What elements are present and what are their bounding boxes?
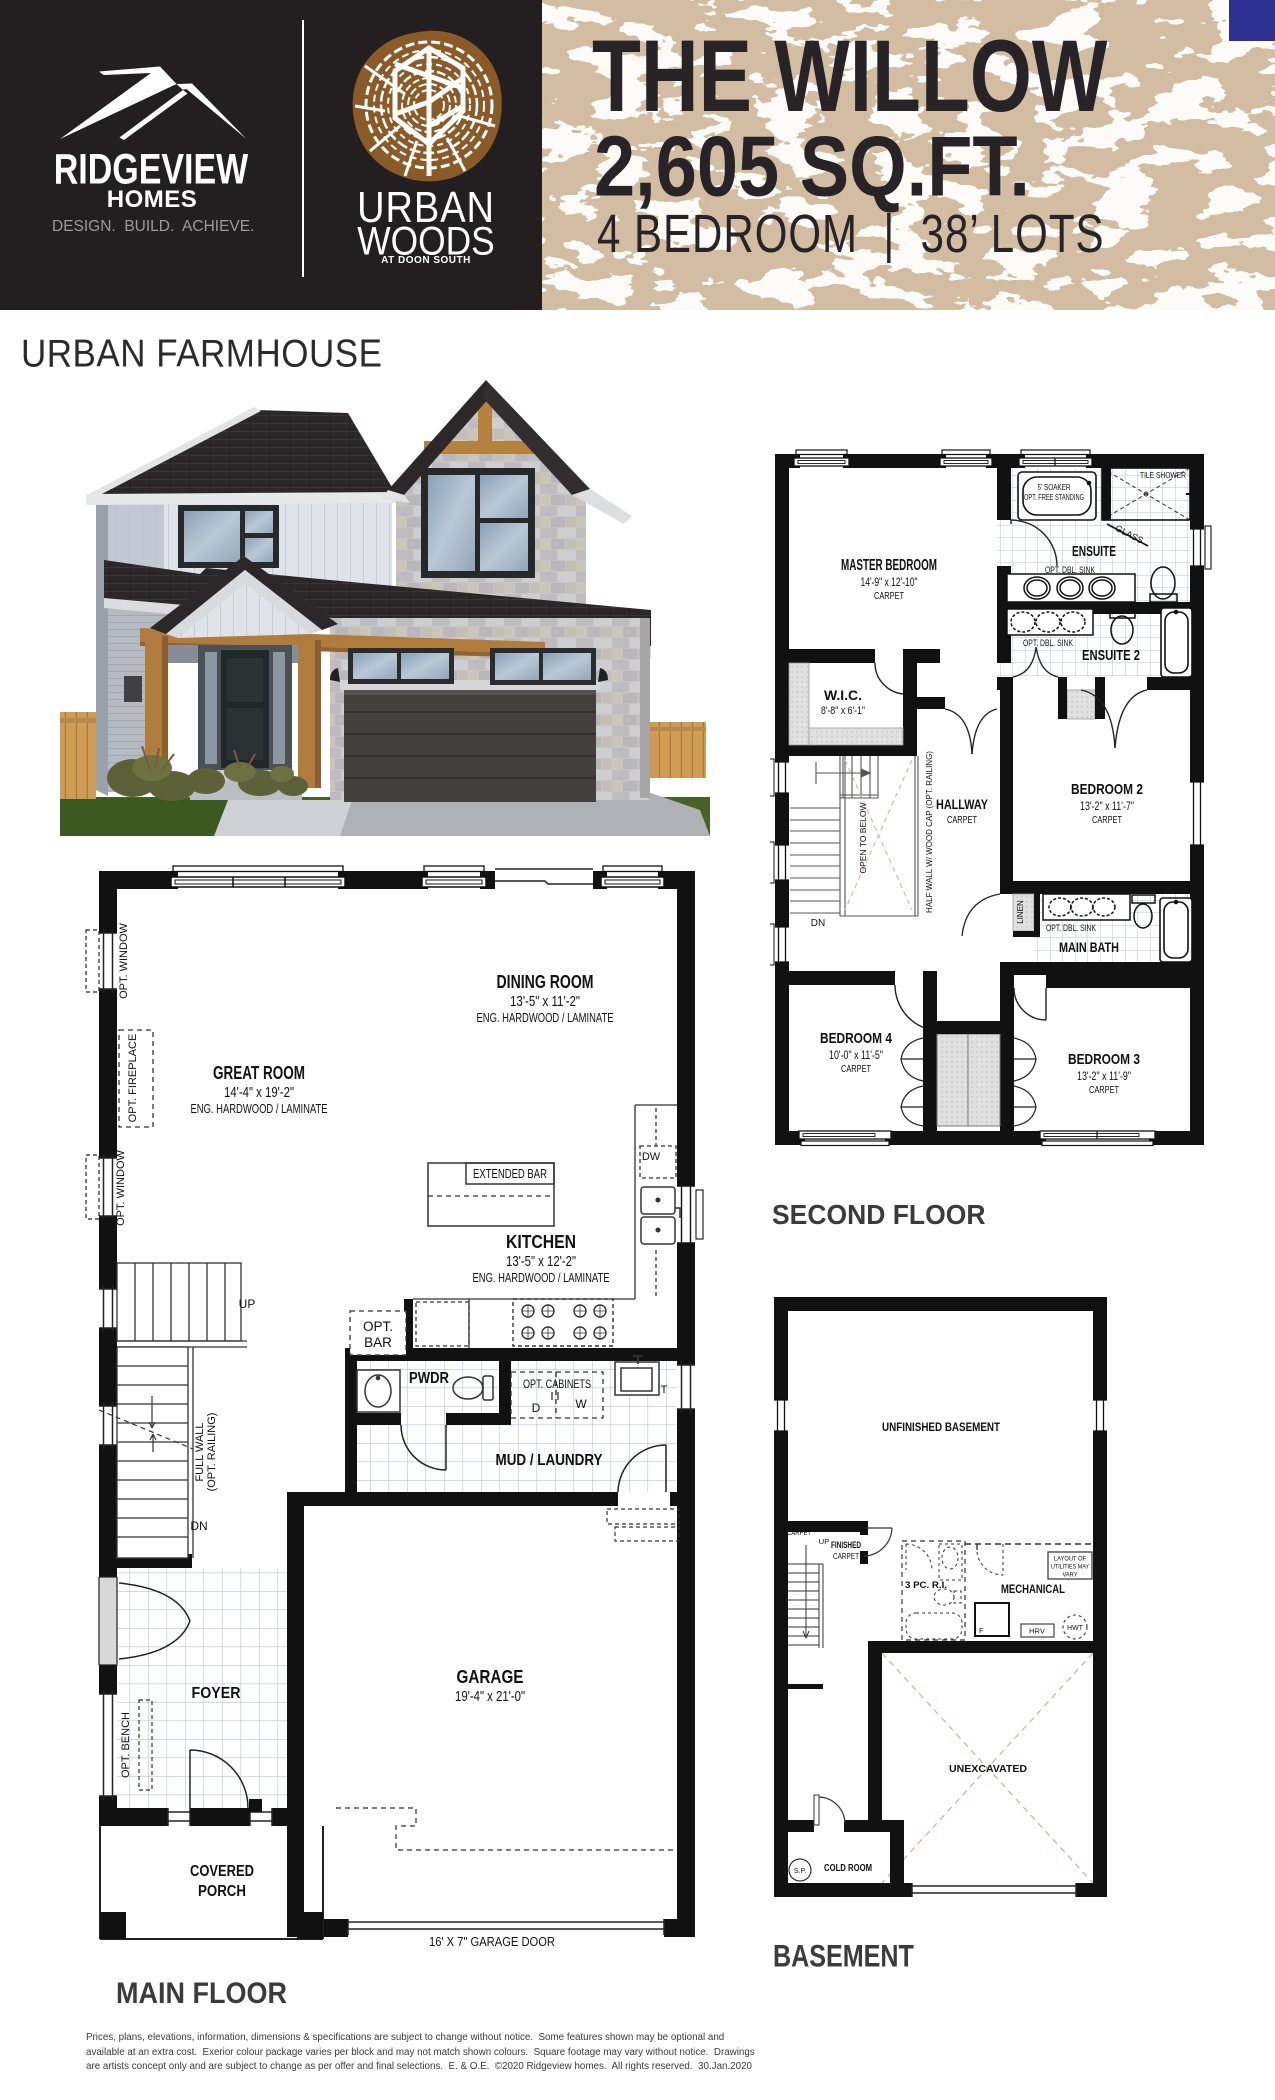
svg-text:FULL WALL: FULL WALL (194, 1422, 206, 1481)
svg-text:OPT. CABINETS: OPT. CABINETS (523, 1379, 591, 1391)
svg-text:VARY: VARY (1063, 1572, 1078, 1579)
svg-text:10'-0" x 11'-5": 10'-0" x 11'-5" (829, 1048, 883, 1062)
svg-text:COVERED: COVERED (190, 1863, 254, 1880)
svg-text:S.P.: S.P. (794, 1868, 806, 1875)
svg-text:ENG. HARDWOOD / LAMINATE: ENG. HARDWOOD / LAMINATE (473, 1270, 610, 1285)
svg-text:13'-2" x 11'-7": 13'-2" x 11'-7" (1080, 799, 1134, 813)
svg-text:3 PC. R.I.: 3 PC. R.I. (905, 1580, 947, 1591)
svg-text:KITCHEN: KITCHEN (506, 1232, 576, 1252)
svg-text:UTILITIES MAY: UTILITIES MAY (1051, 1564, 1089, 1571)
svg-text:OPT. DBL. SINK: OPT. DBL. SINK (1045, 565, 1095, 576)
svg-text:CARPET: CARPET (1092, 814, 1122, 826)
svg-text:OPT. DBL. SINK: OPT. DBL. SINK (1046, 923, 1096, 934)
svg-text:BEDROOM 4: BEDROOM 4 (820, 1030, 893, 1047)
svg-text:EXTENDED BAR: EXTENDED BAR (473, 1167, 547, 1181)
svg-text:(OPT. RAILING): (OPT. RAILING) (206, 1413, 218, 1492)
svg-text:CARPET: CARPET (947, 814, 977, 826)
svg-text:CARPET: CARPET (841, 1063, 871, 1075)
svg-text:HWT: HWT (1067, 1625, 1084, 1632)
svg-text:16' X 7" GARAGE DOOR: 16' X 7" GARAGE DOOR (429, 1934, 555, 1949)
svg-text:19'-4" x 21'-0": 19'-4" x 21'-0" (455, 1689, 525, 1705)
svg-text:ENG. HARDWOOD / LAMINATE: ENG. HARDWOOD / LAMINATE (191, 1101, 328, 1116)
svg-text:MAIN BATH: MAIN BATH (1059, 940, 1119, 955)
svg-text:DN: DN (190, 1519, 207, 1533)
svg-text:GREAT ROOM: GREAT ROOM (213, 1063, 305, 1083)
svg-text:CARPET: CARPET (874, 590, 904, 602)
svg-text:W: W (575, 1397, 587, 1411)
svg-text:D: D (532, 1401, 541, 1415)
svg-text:DINING ROOM: DINING ROOM (497, 972, 594, 992)
svg-text:OPT. FIREPLACE: OPT. FIREPLACE (127, 1034, 139, 1123)
svg-text:CARPET: CARPET (787, 1528, 811, 1537)
svg-text:OPT. WINDOW: OPT. WINDOW (115, 1150, 127, 1226)
svg-text:FOYER: FOYER (192, 1685, 241, 1702)
svg-text:W.I.C.: W.I.C. (824, 687, 862, 703)
svg-text:T: T (661, 1384, 668, 1396)
svg-text:OPT. FREE STANDING: OPT. FREE STANDING (1024, 493, 1084, 502)
svg-text:CARPET: CARPET (833, 1551, 859, 1561)
svg-text:F: F (979, 1626, 984, 1635)
svg-text:5' SOAKER: 5' SOAKER (1038, 483, 1071, 492)
svg-text:ENG. HARDWOOD / LAMINATE: ENG. HARDWOOD / LAMINATE (477, 1010, 614, 1025)
svg-text:PWDR: PWDR (409, 1370, 449, 1387)
svg-text:HRV: HRV (1029, 1627, 1045, 1636)
svg-text:DN: DN (811, 918, 825, 929)
svg-text:MECHANICAL: MECHANICAL (1001, 1584, 1065, 1596)
svg-text:OPT. DBL. SINK: OPT. DBL. SINK (1023, 638, 1073, 649)
svg-text:HALF WALL W/ WOOD CAP (OPT. RA: HALF WALL W/ WOOD CAP (OPT. RAILING) (925, 751, 934, 913)
svg-text:CARPET: CARPET (1089, 1084, 1119, 1096)
svg-text:UNEXCAVATED: UNEXCAVATED (949, 1763, 1027, 1775)
svg-text:13'-2" x 11'-9": 13'-2" x 11'-9" (1077, 1069, 1131, 1083)
svg-text:PORCH: PORCH (198, 1883, 246, 1900)
svg-text:13'-5" x 11'-2": 13'-5" x 11'-2" (510, 994, 580, 1010)
svg-text:UP: UP (819, 1537, 829, 1546)
svg-text:LAYOUT OF: LAYOUT OF (1054, 1556, 1086, 1563)
svg-text:UP: UP (239, 1297, 256, 1311)
svg-text:HALLWAY: HALLWAY (936, 797, 988, 812)
svg-text:BAR: BAR (364, 1335, 392, 1350)
svg-text:OPT.: OPT. (363, 1319, 393, 1334)
svg-text:OPT. BENCH: OPT. BENCH (120, 1712, 132, 1778)
svg-text:ENSUITE 2: ENSUITE 2 (1082, 648, 1140, 664)
svg-text:FINISHED: FINISHED (831, 1540, 861, 1550)
svg-text:UNFINISHED BASEMENT: UNFINISHED BASEMENT (882, 1422, 1000, 1434)
svg-text:TILE SHOWER: TILE SHOWER (1140, 470, 1186, 480)
svg-text:BEDROOM 3: BEDROOM 3 (1068, 1051, 1140, 1068)
svg-text:OPT. WINDOW: OPT. WINDOW (118, 923, 130, 999)
svg-text:OPEN TO BELOW: OPEN TO BELOW (858, 802, 868, 873)
svg-text:COLD ROOM: COLD ROOM (824, 1863, 872, 1874)
svg-text:MUD / LAUNDRY: MUD / LAUNDRY (496, 1452, 603, 1469)
svg-text:14'-9" x 12'-10": 14'-9" x 12'-10" (861, 575, 918, 589)
svg-text:8'-8" x 6'-1": 8'-8" x 6'-1" (821, 705, 865, 717)
svg-text:BEDROOM 2: BEDROOM 2 (1071, 781, 1143, 798)
svg-text:13'-5" x 12'-2": 13'-5" x 12'-2" (506, 1254, 576, 1270)
svg-text:14'-4" x 19'-2": 14'-4" x 19'-2" (224, 1085, 294, 1101)
svg-text:DW: DW (642, 1151, 661, 1163)
svg-text:LINEN: LINEN (1016, 900, 1025, 924)
svg-text:GARAGE: GARAGE (457, 1667, 524, 1687)
svg-text:ENSUITE: ENSUITE (1072, 544, 1116, 560)
svg-text:MASTER BEDROOM: MASTER BEDROOM (841, 557, 937, 574)
